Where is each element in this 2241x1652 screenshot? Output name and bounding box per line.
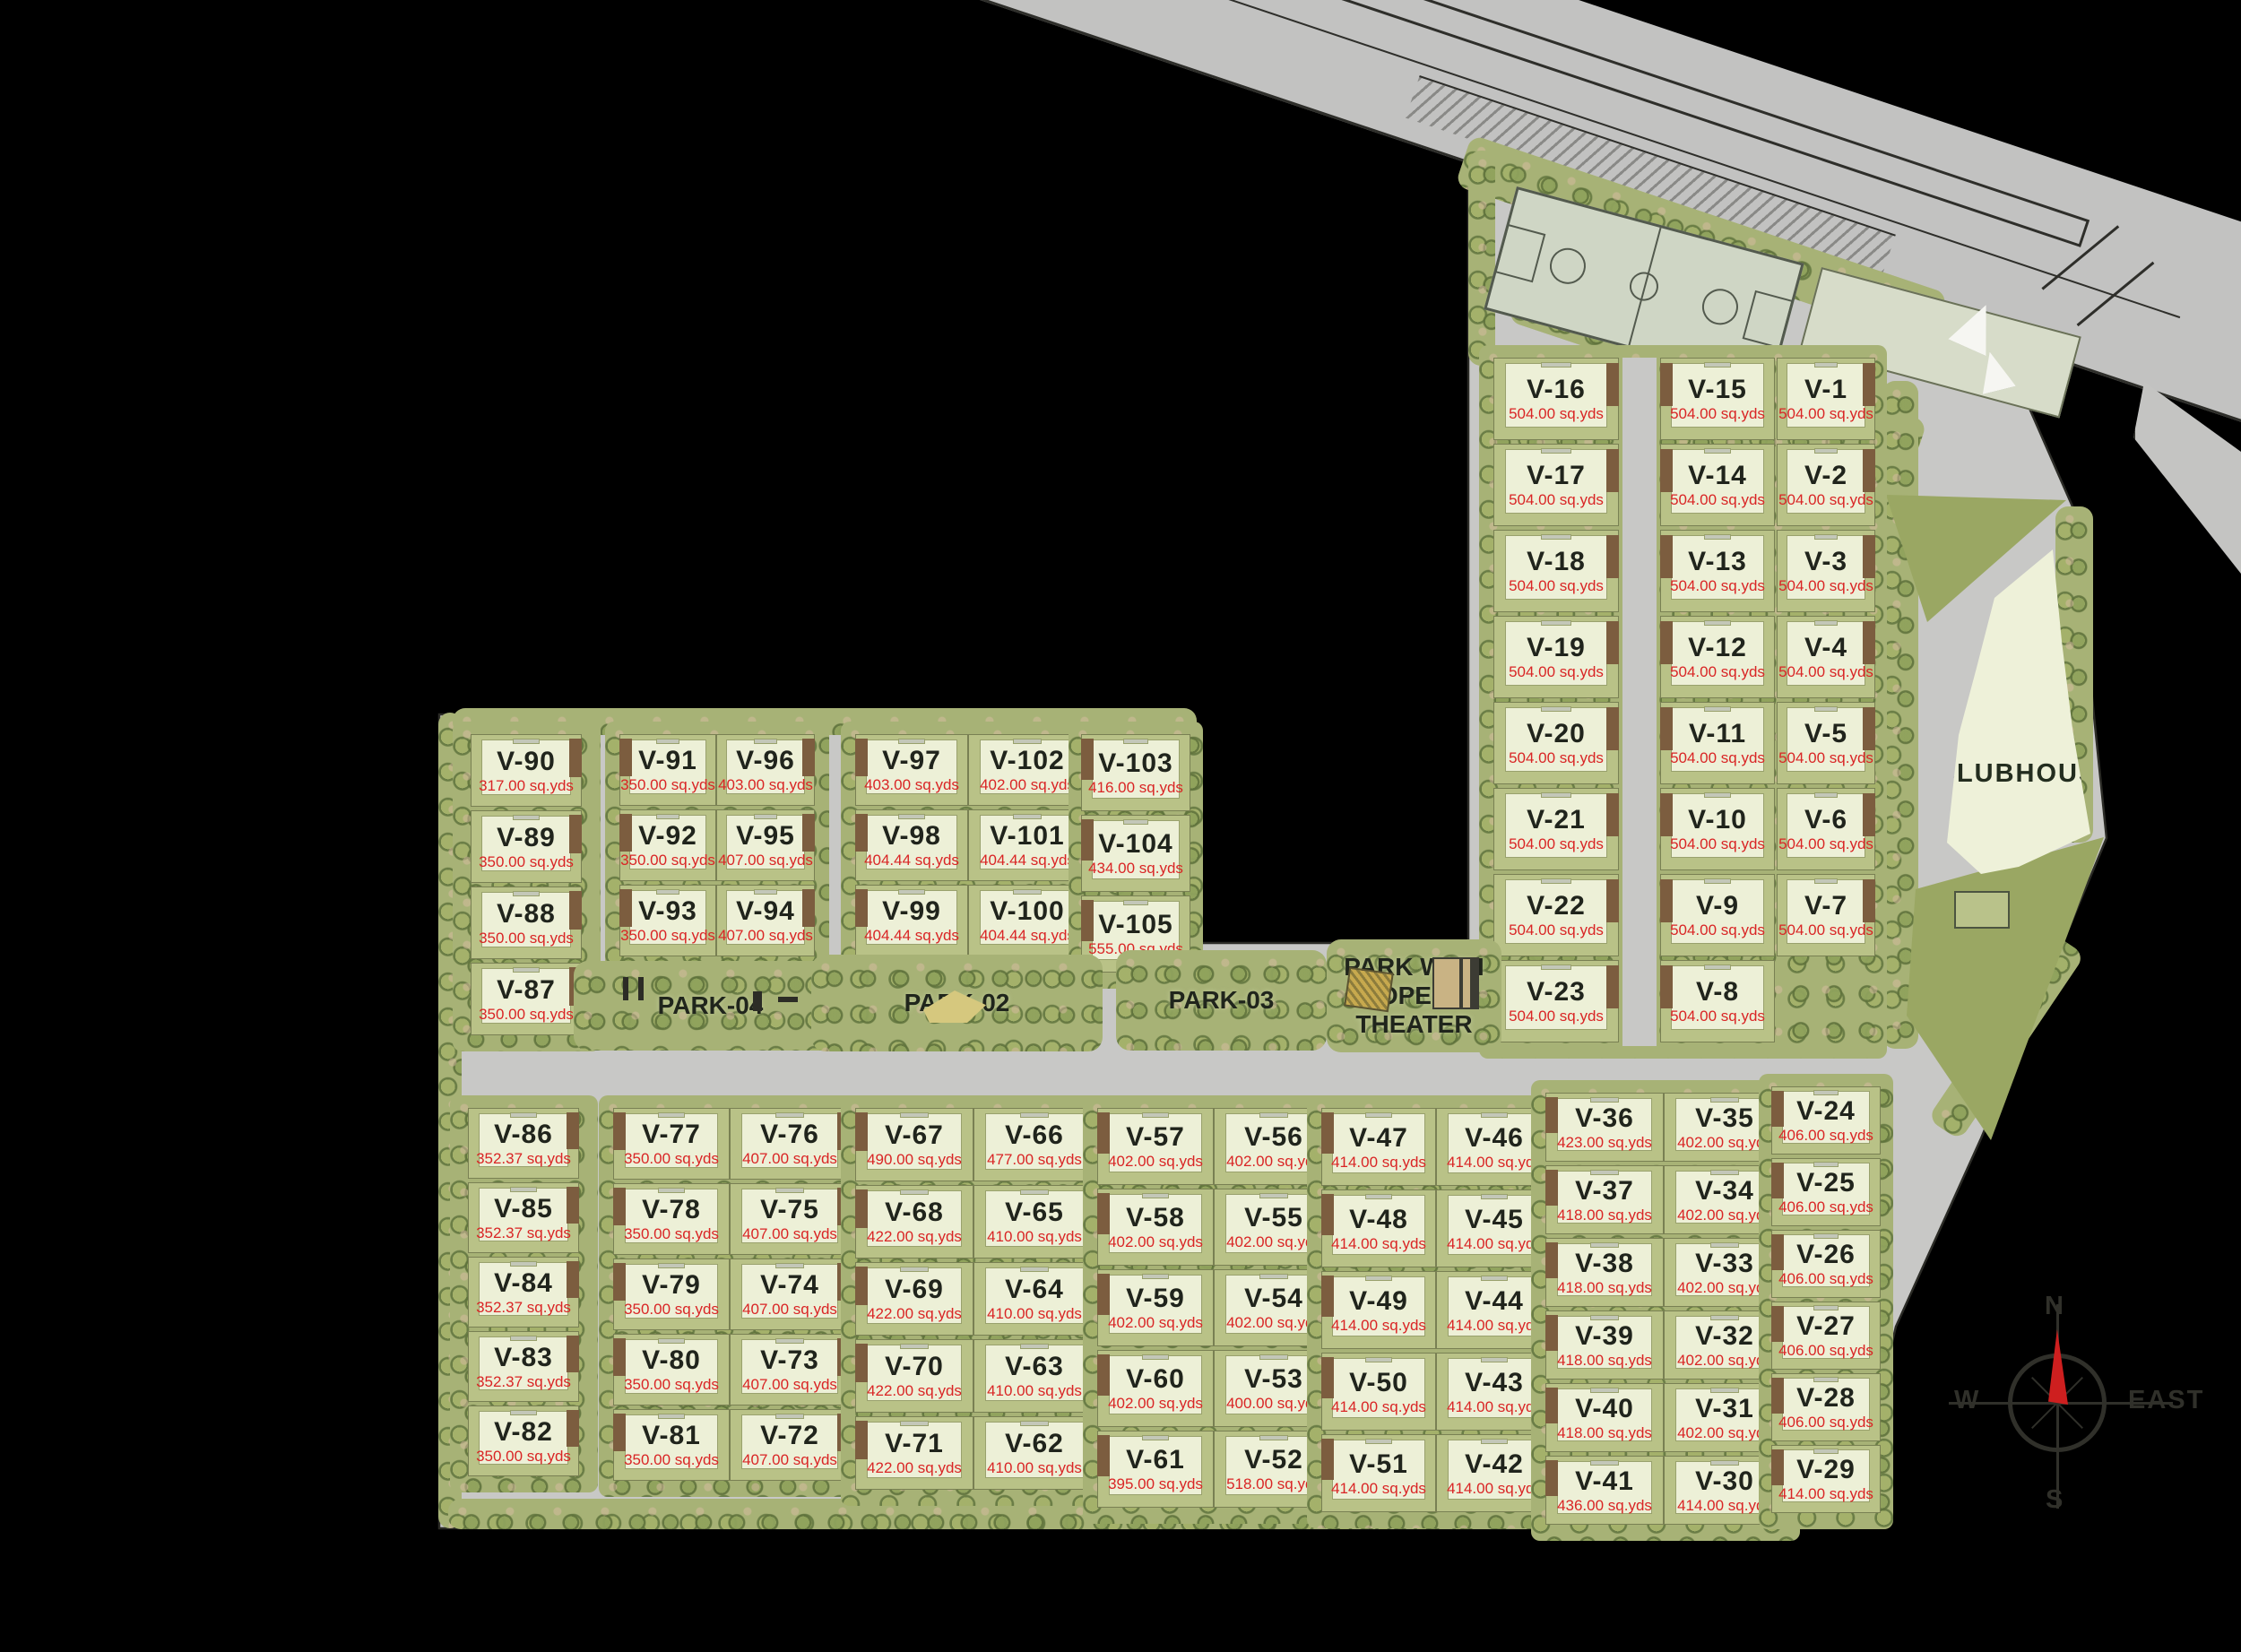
plot-area: 504.00 sq.yds bbox=[1509, 922, 1604, 938]
plot-number: V-103 bbox=[1098, 750, 1172, 777]
villa-plot-v-60: V-60402.00 sq.yds bbox=[1097, 1350, 1214, 1427]
plot-number: V-43 bbox=[1465, 1370, 1524, 1397]
villa-plot-v-70: V-70422.00 sq.yds bbox=[855, 1339, 973, 1413]
plot-number: V-60 bbox=[1126, 1366, 1185, 1393]
plot-area: 407.00 sq.yds bbox=[718, 852, 813, 868]
villa-plot-v-37: V-37418.00 sq.yds bbox=[1545, 1165, 1664, 1234]
plot-area: 504.00 sq.yds bbox=[1670, 1008, 1765, 1024]
villa-plot-v-58: V-58402.00 sq.yds bbox=[1097, 1189, 1214, 1266]
villa-plot-v-75: V-75407.00 sq.yds bbox=[730, 1183, 850, 1255]
park-04: PARK-04 bbox=[574, 961, 847, 1051]
plot-number: V-37 bbox=[1575, 1178, 1634, 1205]
plot-area: 504.00 sq.yds bbox=[1670, 406, 1765, 421]
villa-plot-v-67: V-67490.00 sq.yds bbox=[855, 1108, 973, 1181]
plot-number: V-83 bbox=[494, 1345, 553, 1371]
villa-plot-v-69: V-69422.00 sq.yds bbox=[855, 1262, 973, 1336]
plot-number: V-31 bbox=[1695, 1396, 1754, 1423]
plot-area: 395.00 sq.yds bbox=[1108, 1476, 1203, 1492]
plot-area: 416.00 sq.yds bbox=[1088, 780, 1183, 795]
plot-area: 422.00 sq.yds bbox=[867, 1460, 962, 1475]
plot-area: 422.00 sq.yds bbox=[867, 1306, 962, 1321]
plot-area: 504.00 sq.yds bbox=[1509, 750, 1604, 765]
villa-plot-v-6: V-6504.00 sq.yds bbox=[1777, 788, 1875, 870]
plot-number: V-8 bbox=[1696, 979, 1739, 1006]
plot-number: V-68 bbox=[885, 1199, 944, 1226]
villa-plot-v-7: V-7504.00 sq.yds bbox=[1777, 874, 1875, 956]
villa-plot-v-41: V-41436.00 sq.yds bbox=[1545, 1456, 1664, 1525]
playground-seesaw-icon bbox=[753, 991, 762, 1011]
plot-area: 350.00 sq.yds bbox=[624, 1226, 719, 1241]
plot-number: V-4 bbox=[1804, 635, 1847, 662]
villa-plot-v-21: V-21504.00 sq.yds bbox=[1493, 788, 1619, 870]
mid-91-96-block: V-91350.00 sq.ydsV-92350.00 sq.ydsV-9335… bbox=[605, 722, 829, 973]
park-03: PARK-03 bbox=[1116, 950, 1327, 1051]
plot-area: 504.00 sq.yds bbox=[1778, 492, 1873, 507]
plot-number: V-91 bbox=[638, 748, 697, 774]
plot-area: 350.00 sq.yds bbox=[624, 1151, 719, 1166]
court-circle bbox=[1546, 244, 1590, 288]
plot-number: V-79 bbox=[642, 1272, 701, 1299]
plot-number: V-49 bbox=[1349, 1288, 1408, 1315]
villa-plot-v-3: V-3504.00 sq.yds bbox=[1777, 530, 1875, 612]
plot-area: 352.37 sq.yds bbox=[476, 1151, 571, 1166]
south-72-81-block: V-77350.00 sq.ydsV-78350.00 sq.ydsV-7935… bbox=[599, 1095, 863, 1497]
villa-plot-v-2: V-2504.00 sq.yds bbox=[1777, 444, 1875, 526]
plot-number: V-77 bbox=[642, 1121, 701, 1148]
plot-number: V-71 bbox=[885, 1431, 944, 1457]
plot-area: 414.00 sq.yds bbox=[1331, 1236, 1426, 1251]
villa-plot-v-12: V-12504.00 sq.yds bbox=[1660, 616, 1775, 698]
plot-area: 504.00 sq.yds bbox=[1778, 836, 1873, 852]
plot-area: 504.00 sq.yds bbox=[1670, 836, 1765, 852]
plot-area: 350.00 sq.yds bbox=[479, 854, 574, 869]
villa-plot-v-39: V-39418.00 sq.yds bbox=[1545, 1310, 1664, 1380]
plot-number: V-47 bbox=[1349, 1125, 1408, 1152]
plot-area: 350.00 sq.yds bbox=[476, 1449, 571, 1464]
plot-number: V-95 bbox=[736, 823, 795, 850]
plot-number: V-20 bbox=[1527, 721, 1586, 748]
compass-rose: N W S EAST bbox=[1936, 1295, 2196, 1519]
villa-plot-v-78: V-78350.00 sq.yds bbox=[613, 1183, 730, 1255]
villa-plot-v-92: V-92350.00 sq.yds bbox=[619, 809, 716, 881]
plot-area: 418.00 sq.yds bbox=[1557, 1353, 1652, 1368]
plot-area: 418.00 sq.yds bbox=[1557, 1280, 1652, 1295]
villa-plot-v-73: V-73407.00 sq.yds bbox=[730, 1334, 850, 1405]
plot-area: 504.00 sq.yds bbox=[1670, 492, 1765, 507]
villa-plot-v-1: V-1504.00 sq.yds bbox=[1777, 358, 1875, 440]
plot-area: 407.00 sq.yds bbox=[742, 1302, 837, 1317]
villa-plot-v-50: V-50414.00 sq.yds bbox=[1321, 1353, 1436, 1431]
open-theater-steps bbox=[1432, 957, 1479, 1009]
plot-number: V-17 bbox=[1527, 463, 1586, 489]
villa-plot-v-27: V-27406.00 sq.yds bbox=[1771, 1302, 1881, 1370]
plot-number: V-25 bbox=[1796, 1170, 1856, 1197]
plot-area: 407.00 sq.yds bbox=[742, 1452, 837, 1467]
villa-plot-v-63: V-63410.00 sq.yds bbox=[973, 1339, 1095, 1413]
plot-number: V-63 bbox=[1005, 1354, 1064, 1380]
plot-area: 414.00 sq.yds bbox=[1331, 1155, 1426, 1170]
plot-area: 414.00 sq.yds bbox=[1331, 1318, 1426, 1333]
villa-plot-v-40: V-40418.00 sq.yds bbox=[1545, 1383, 1664, 1452]
plot-number: V-85 bbox=[494, 1196, 553, 1223]
villa-plot-v-28: V-28406.00 sq.yds bbox=[1771, 1373, 1881, 1441]
plot-area: 504.00 sq.yds bbox=[1778, 578, 1873, 593]
plot-number: V-94 bbox=[736, 898, 795, 925]
south-24-29-block: V-24406.00 sq.ydsV-25406.00 sq.ydsV-2640… bbox=[1759, 1074, 1893, 1529]
villa-plot-v-83: V-83352.37 sq.yds bbox=[468, 1331, 579, 1402]
plot-area: 414.00 sq.yds bbox=[1331, 1399, 1426, 1414]
villa-plot-v-71: V-71422.00 sq.yds bbox=[855, 1416, 973, 1490]
plot-area: 504.00 sq.yds bbox=[1670, 922, 1765, 938]
garden-structure bbox=[1954, 891, 2010, 929]
plot-area: 490.00 sq.yds bbox=[867, 1152, 962, 1167]
plot-area: 504.00 sq.yds bbox=[1670, 578, 1765, 593]
south-62-71-block: V-67490.00 sq.ydsV-68422.00 sq.ydsV-6942… bbox=[841, 1095, 1110, 1506]
plot-area: 350.00 sq.yds bbox=[624, 1302, 719, 1317]
plot-number: V-88 bbox=[497, 901, 556, 928]
plot-number: V-21 bbox=[1527, 807, 1586, 834]
plot-number: V-30 bbox=[1695, 1468, 1754, 1495]
villa-plot-v-16: V-16504.00 sq.yds bbox=[1493, 358, 1619, 440]
villa-plot-v-94: V-94407.00 sq.yds bbox=[716, 885, 815, 956]
plot-area: 350.00 sq.yds bbox=[620, 928, 715, 943]
plot-number: V-6 bbox=[1804, 807, 1847, 834]
plot-number: V-92 bbox=[638, 823, 697, 850]
plot-number: V-48 bbox=[1349, 1207, 1408, 1233]
plot-number: V-89 bbox=[497, 825, 556, 852]
playground-swing-icon bbox=[623, 977, 628, 1000]
playground-swing-icon bbox=[638, 977, 644, 1000]
plot-number: V-58 bbox=[1126, 1205, 1185, 1232]
villa-plot-v-23: V-23504.00 sq.yds bbox=[1493, 960, 1619, 1042]
plot-area: 418.00 sq.yds bbox=[1557, 1425, 1652, 1440]
villa-plot-v-38: V-38418.00 sq.yds bbox=[1545, 1238, 1664, 1307]
plot-area: 406.00 sq.yds bbox=[1778, 1128, 1873, 1143]
villa-plot-v-51: V-51414.00 sq.yds bbox=[1321, 1434, 1436, 1512]
plot-area: 317.00 sq.yds bbox=[479, 778, 574, 793]
villa-plot-v-88: V-88350.00 sq.yds bbox=[471, 887, 582, 959]
plot-area: 504.00 sq.yds bbox=[1778, 406, 1873, 421]
villa-plot-v-68: V-68422.00 sq.yds bbox=[855, 1185, 973, 1258]
compass-north-label: N bbox=[2045, 1292, 2064, 1321]
compass-east-label: EAST bbox=[2128, 1386, 2204, 1415]
villa-plot-v-15: V-15504.00 sq.yds bbox=[1660, 358, 1775, 440]
plot-number: V-102 bbox=[990, 748, 1064, 774]
plot-area: 504.00 sq.yds bbox=[1670, 750, 1765, 765]
plot-area: 350.00 sq.yds bbox=[479, 930, 574, 946]
plot-number: V-87 bbox=[497, 977, 556, 1004]
park-04-label: PARK-04 bbox=[658, 991, 764, 1020]
plot-area: 414.00 sq.yds bbox=[1447, 1155, 1542, 1170]
plot-area: 504.00 sq.yds bbox=[1509, 836, 1604, 852]
plot-area: 350.00 sq.yds bbox=[620, 852, 715, 868]
villa-plot-v-95: V-95407.00 sq.yds bbox=[716, 809, 815, 881]
plot-number: V-59 bbox=[1126, 1285, 1185, 1312]
plot-number: V-11 bbox=[1689, 721, 1746, 748]
plot-number: V-14 bbox=[1688, 463, 1747, 489]
plot-area: 414.00 sq.yds bbox=[1778, 1486, 1873, 1501]
plot-number: V-35 bbox=[1695, 1105, 1754, 1132]
plot-number: V-9 bbox=[1696, 893, 1739, 920]
villa-plot-v-64: V-64410.00 sq.yds bbox=[973, 1262, 1095, 1336]
plot-number: V-72 bbox=[760, 1423, 819, 1449]
plot-number: V-26 bbox=[1796, 1241, 1856, 1268]
villa-plot-v-47: V-47414.00 sq.yds bbox=[1321, 1108, 1436, 1186]
villa-plot-v-14: V-14504.00 sq.yds bbox=[1660, 444, 1775, 526]
plot-number: V-51 bbox=[1349, 1451, 1408, 1478]
plot-number: V-96 bbox=[736, 748, 795, 774]
plot-area: 504.00 sq.yds bbox=[1509, 492, 1604, 507]
plot-number: V-104 bbox=[1098, 831, 1172, 858]
villa-plot-v-36: V-36423.00 sq.yds bbox=[1545, 1093, 1664, 1162]
compass-west-label: W bbox=[1954, 1386, 1978, 1415]
plot-area: 407.00 sq.yds bbox=[742, 1377, 837, 1392]
plot-number: V-86 bbox=[494, 1121, 553, 1148]
villa-plot-v-19: V-19504.00 sq.yds bbox=[1493, 616, 1619, 698]
villa-plot-v-98: V-98404.44 sq.yds bbox=[855, 809, 968, 881]
plot-area: 404.44 sq.yds bbox=[864, 928, 959, 943]
highway-junction-line bbox=[2077, 262, 2155, 326]
plot-number: V-73 bbox=[760, 1347, 819, 1374]
villa-plot-v-72: V-72407.00 sq.yds bbox=[730, 1409, 850, 1481]
villa-plot-v-79: V-79350.00 sq.yds bbox=[613, 1258, 730, 1330]
plot-area: 436.00 sq.yds bbox=[1557, 1498, 1652, 1513]
villa-plot-v-104: V-104434.00 sq.yds bbox=[1081, 815, 1190, 892]
plot-number: V-23 bbox=[1527, 979, 1586, 1006]
plot-area: 504.00 sq.yds bbox=[1778, 922, 1873, 938]
plot-number: V-33 bbox=[1695, 1250, 1754, 1277]
villa-plot-v-24: V-24406.00 sq.yds bbox=[1771, 1086, 1881, 1155]
villa-plot-v-17: V-17504.00 sq.yds bbox=[1493, 444, 1619, 526]
south-82-86-block: V-86352.37 sq.ydsV-85352.37 sq.ydsV-8435… bbox=[450, 1095, 598, 1492]
plot-number: V-67 bbox=[885, 1122, 944, 1149]
plot-area: 403.00 sq.yds bbox=[718, 777, 813, 792]
villa-plot-v-13: V-13504.00 sq.yds bbox=[1660, 530, 1775, 612]
plot-number: V-16 bbox=[1527, 376, 1586, 403]
villas-north-block: V-16504.00 sq.ydsV-17504.00 sq.ydsV-1850… bbox=[1479, 345, 1887, 1059]
plot-number: V-52 bbox=[1244, 1447, 1303, 1474]
villa-plot-v-20: V-20504.00 sq.yds bbox=[1493, 702, 1619, 784]
villa-plot-v-62: V-62410.00 sq.yds bbox=[973, 1416, 1095, 1490]
plot-area: 352.37 sq.yds bbox=[476, 1225, 571, 1241]
plot-area: 477.00 sq.yds bbox=[987, 1152, 1082, 1167]
villa-plot-v-96: V-96403.00 sq.yds bbox=[716, 734, 815, 806]
plot-area: 504.00 sq.yds bbox=[1509, 578, 1604, 593]
plot-area: 434.00 sq.yds bbox=[1088, 861, 1183, 876]
villa-plot-v-65: V-65410.00 sq.yds bbox=[973, 1185, 1095, 1258]
plot-number: V-81 bbox=[642, 1423, 701, 1449]
villa-plot-v-93: V-93350.00 sq.yds bbox=[619, 885, 716, 956]
villa-plot-v-10: V-10504.00 sq.yds bbox=[1660, 788, 1775, 870]
plot-number: V-46 bbox=[1465, 1125, 1524, 1152]
south-42-51-block: V-47414.00 sq.ydsV-48414.00 sq.ydsV-4941… bbox=[1307, 1095, 1567, 1528]
plot-area: 350.00 sq.yds bbox=[620, 777, 715, 792]
plot-number: V-22 bbox=[1527, 893, 1586, 920]
plot-number: V-45 bbox=[1465, 1207, 1524, 1233]
plot-area: 407.00 sq.yds bbox=[718, 928, 813, 943]
mid-103-105-block: V-103416.00 sq.ydsV-104434.00 sq.ydsV-10… bbox=[1069, 722, 1203, 989]
villa-plot-v-26: V-26406.00 sq.yds bbox=[1771, 1230, 1881, 1298]
villa-plot-v-8: V-8504.00 sq.yds bbox=[1660, 960, 1775, 1042]
villa-plot-v-11: V-11504.00 sq.yds bbox=[1660, 702, 1775, 784]
plot-area: 410.00 sq.yds bbox=[987, 1306, 1082, 1321]
plot-area: 504.00 sq.yds bbox=[1670, 664, 1765, 679]
villa-plot-v-66: V-66477.00 sq.yds bbox=[973, 1108, 1095, 1181]
plot-area: 406.00 sq.yds bbox=[1778, 1343, 1873, 1358]
villa-plot-v-18: V-18504.00 sq.yds bbox=[1493, 530, 1619, 612]
plot-number: V-65 bbox=[1005, 1199, 1064, 1226]
plot-number: V-7 bbox=[1804, 893, 1847, 920]
internal-lane bbox=[1622, 358, 1657, 1046]
villa-plot-v-91: V-91350.00 sq.yds bbox=[619, 734, 716, 806]
plot-area: 410.00 sq.yds bbox=[987, 1383, 1082, 1398]
plot-number: V-75 bbox=[760, 1197, 819, 1224]
plot-number: V-99 bbox=[882, 898, 941, 925]
plot-area: 423.00 sq.yds bbox=[1557, 1135, 1652, 1150]
plot-number: V-38 bbox=[1575, 1250, 1634, 1277]
plot-number: V-5 bbox=[1804, 721, 1847, 748]
plot-area: 404.44 sq.yds bbox=[980, 928, 1075, 943]
plot-number: V-28 bbox=[1796, 1385, 1856, 1412]
plot-number: V-78 bbox=[642, 1197, 701, 1224]
plot-number: V-64 bbox=[1005, 1276, 1064, 1303]
plot-area: 402.00 sq.yds bbox=[1108, 1396, 1203, 1411]
plot-number: V-1 bbox=[1804, 376, 1847, 403]
plot-area: 422.00 sq.yds bbox=[867, 1229, 962, 1244]
plot-number: V-66 bbox=[1005, 1122, 1064, 1149]
court-circle bbox=[1698, 285, 1742, 329]
plot-area: 504.00 sq.yds bbox=[1509, 664, 1604, 679]
playground-bench-icon bbox=[778, 997, 798, 1002]
plot-area: 414.00 sq.yds bbox=[1447, 1399, 1542, 1414]
plot-number: V-97 bbox=[882, 748, 941, 774]
plot-number: V-41 bbox=[1575, 1468, 1634, 1495]
plot-number: V-105 bbox=[1098, 912, 1172, 938]
plot-area: 410.00 sq.yds bbox=[987, 1229, 1082, 1244]
plot-number: V-62 bbox=[1005, 1431, 1064, 1457]
villa-plot-v-84: V-84352.37 sq.yds bbox=[468, 1257, 579, 1328]
villa-plot-v-74: V-74407.00 sq.yds bbox=[730, 1258, 850, 1330]
plot-number: V-53 bbox=[1244, 1366, 1303, 1393]
villa-plot-v-89: V-89350.00 sq.yds bbox=[471, 810, 582, 883]
plot-number: V-34 bbox=[1695, 1178, 1754, 1205]
villa-plot-v-4: V-4504.00 sq.yds bbox=[1777, 616, 1875, 698]
plot-area: 406.00 sq.yds bbox=[1778, 1199, 1873, 1215]
plot-area: 402.00 sq.yds bbox=[980, 777, 1075, 792]
villa-plot-v-5: V-5504.00 sq.yds bbox=[1777, 702, 1875, 784]
plot-area: 414.00 sq.yds bbox=[1331, 1481, 1426, 1496]
villa-plot-v-77: V-77350.00 sq.yds bbox=[613, 1108, 730, 1180]
villa-plot-v-49: V-49414.00 sq.yds bbox=[1321, 1271, 1436, 1349]
plot-number: V-19 bbox=[1527, 635, 1586, 662]
plot-number: V-56 bbox=[1244, 1124, 1303, 1151]
villa-plot-v-76: V-76407.00 sq.yds bbox=[730, 1108, 850, 1180]
plot-number: V-70 bbox=[885, 1354, 944, 1380]
plot-number: V-100 bbox=[990, 898, 1064, 925]
villa-plot-v-9: V-9504.00 sq.yds bbox=[1660, 874, 1775, 956]
plot-area: 414.00 sq.yds bbox=[1447, 1318, 1542, 1333]
plot-area: 402.00 sq.yds bbox=[1108, 1234, 1203, 1250]
plot-number: V-76 bbox=[760, 1121, 819, 1148]
villa-plot-v-103: V-103416.00 sq.yds bbox=[1081, 734, 1190, 811]
plot-number: V-93 bbox=[638, 898, 697, 925]
tree-belt bbox=[1468, 151, 1495, 366]
plot-number: V-69 bbox=[885, 1276, 944, 1303]
villa-plot-v-48: V-48414.00 sq.yds bbox=[1321, 1189, 1436, 1267]
plot-number: V-18 bbox=[1527, 549, 1586, 575]
plot-area: 403.00 sq.yds bbox=[864, 777, 959, 792]
plot-area: 504.00 sq.yds bbox=[1509, 406, 1604, 421]
plot-number: V-55 bbox=[1244, 1205, 1303, 1232]
plot-number: V-54 bbox=[1244, 1285, 1303, 1312]
court-center-circle bbox=[1626, 269, 1661, 304]
plot-number: V-27 bbox=[1796, 1313, 1856, 1340]
plot-area: 407.00 sq.yds bbox=[742, 1226, 837, 1241]
plot-number: V-84 bbox=[494, 1270, 553, 1297]
plot-number: V-12 bbox=[1688, 635, 1747, 662]
villa-plot-v-25: V-25406.00 sq.yds bbox=[1771, 1158, 1881, 1226]
villa-plot-v-86: V-86352.37 sq.yds bbox=[468, 1108, 579, 1179]
plot-number: V-50 bbox=[1349, 1370, 1408, 1397]
park-03-label: PARK-03 bbox=[1169, 986, 1275, 1015]
plot-area: 402.00 sq.yds bbox=[1108, 1315, 1203, 1330]
plot-area: 414.00 sq.yds bbox=[1447, 1236, 1542, 1251]
plot-number: V-36 bbox=[1575, 1105, 1634, 1132]
open-theater-stage bbox=[1344, 967, 1394, 1013]
plot-area: 504.00 sq.yds bbox=[1509, 1008, 1604, 1024]
plot-number: V-90 bbox=[497, 748, 556, 775]
villa-plot-v-81: V-81350.00 sq.yds bbox=[613, 1409, 730, 1481]
plot-number: V-3 bbox=[1804, 549, 1847, 575]
plot-area: 352.37 sq.yds bbox=[476, 1374, 571, 1389]
plot-number: V-61 bbox=[1126, 1447, 1185, 1474]
plot-number: V-80 bbox=[642, 1347, 701, 1374]
villa-plot-v-80: V-80350.00 sq.yds bbox=[613, 1334, 730, 1405]
plot-area: 404.44 sq.yds bbox=[980, 852, 1075, 868]
villa-plot-v-57: V-57402.00 sq.yds bbox=[1097, 1108, 1214, 1185]
plot-area: 410.00 sq.yds bbox=[987, 1460, 1082, 1475]
plot-area: 406.00 sq.yds bbox=[1778, 1271, 1873, 1286]
plot-number: V-10 bbox=[1688, 807, 1747, 834]
plot-number: V-13 bbox=[1688, 549, 1747, 575]
plot-area: 350.00 sq.yds bbox=[624, 1452, 719, 1467]
plot-number: V-101 bbox=[990, 823, 1064, 850]
plot-area: 350.00 sq.yds bbox=[624, 1377, 719, 1392]
plot-area: 404.44 sq.yds bbox=[864, 852, 959, 868]
villa-plot-v-59: V-59402.00 sq.yds bbox=[1097, 1269, 1214, 1346]
plot-number: V-98 bbox=[882, 823, 941, 850]
plot-area: 414.00 sq.yds bbox=[1447, 1481, 1542, 1496]
plot-area: 407.00 sq.yds bbox=[742, 1151, 837, 1166]
plot-number: V-42 bbox=[1465, 1451, 1524, 1478]
plot-area: 402.00 sq.yds bbox=[1108, 1154, 1203, 1169]
villa-plot-v-99: V-99404.44 sq.yds bbox=[855, 885, 968, 956]
villa-plot-v-29: V-29414.00 sq.yds bbox=[1771, 1445, 1881, 1513]
plot-number: V-57 bbox=[1126, 1124, 1185, 1151]
villa-plot-v-22: V-22504.00 sq.yds bbox=[1493, 874, 1619, 956]
villa-site-plan: CLUBHOUSE V-16504.00 sq.ydsV-17504.00 sq… bbox=[0, 0, 2241, 1652]
plot-number: V-40 bbox=[1575, 1396, 1634, 1423]
plot-area: 406.00 sq.yds bbox=[1778, 1414, 1873, 1430]
plot-area: 504.00 sq.yds bbox=[1778, 750, 1873, 765]
plot-area: 418.00 sq.yds bbox=[1557, 1207, 1652, 1223]
plot-number: V-15 bbox=[1688, 376, 1747, 403]
plot-number: V-29 bbox=[1796, 1457, 1856, 1483]
villa-plot-v-82: V-82350.00 sq.yds bbox=[468, 1405, 579, 1476]
plot-number: V-39 bbox=[1575, 1323, 1634, 1350]
villa-plot-v-85: V-85352.37 sq.yds bbox=[468, 1182, 579, 1253]
plot-area: 352.37 sq.yds bbox=[476, 1300, 571, 1315]
